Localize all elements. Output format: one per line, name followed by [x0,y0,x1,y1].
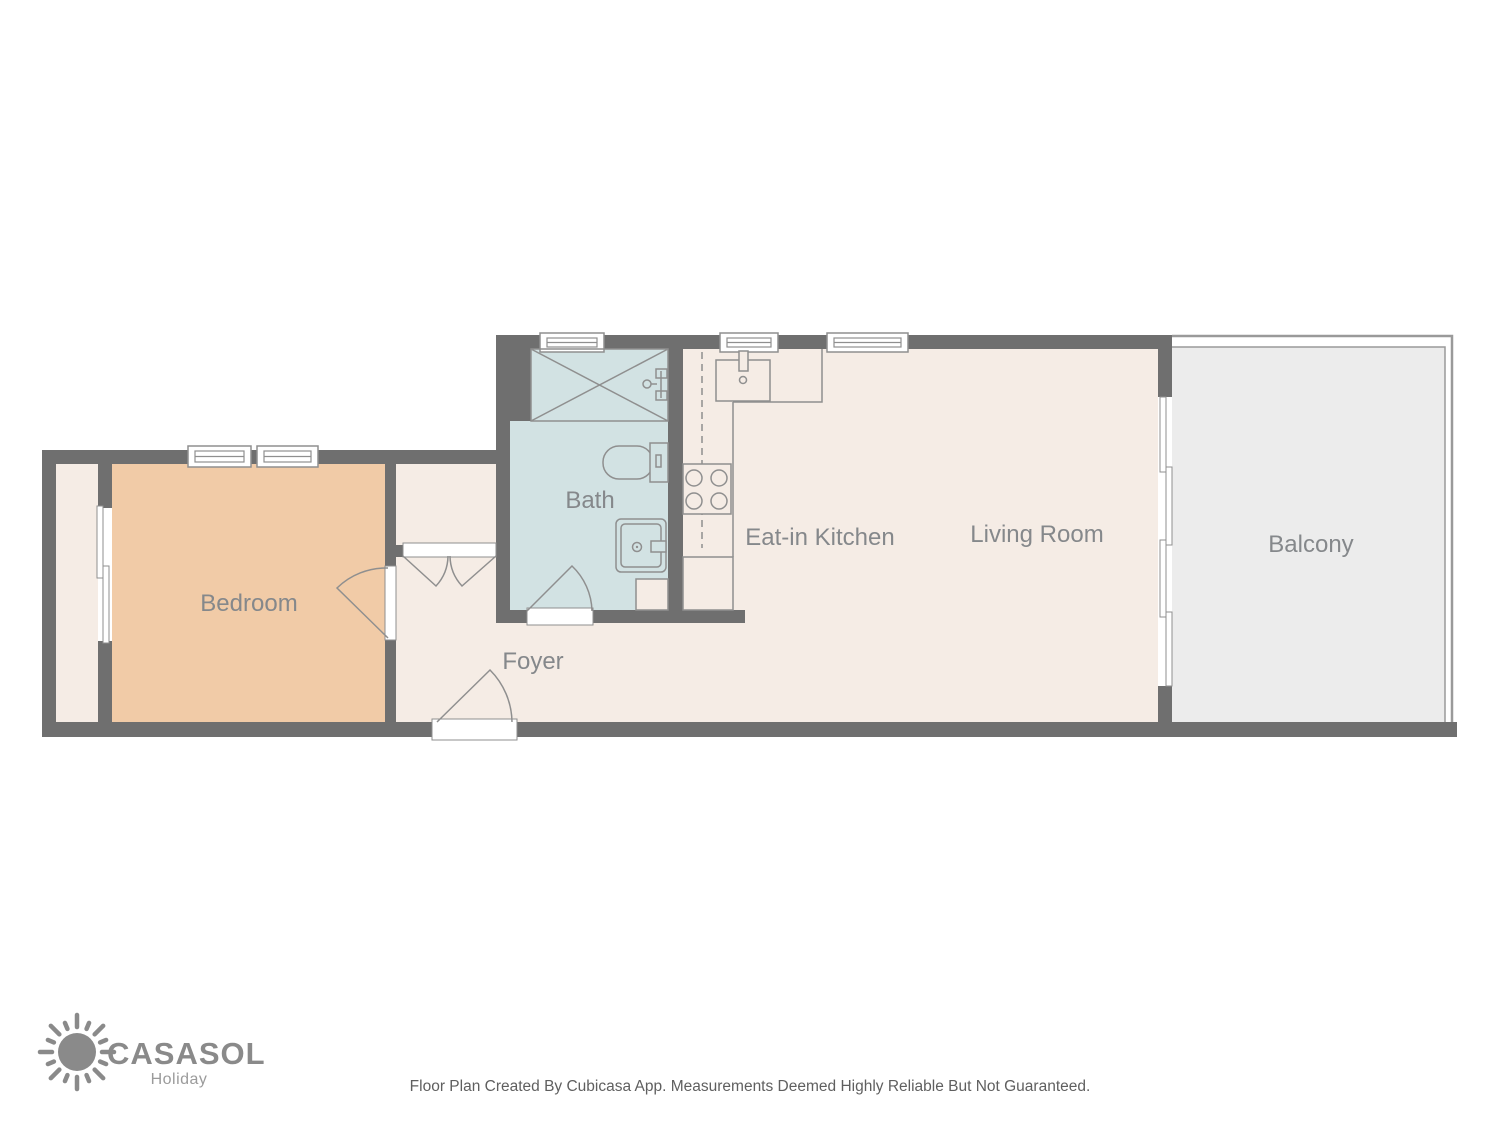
wall-bottom-outer [42,722,1457,737]
balcony-slider-panel-3 [1160,540,1166,617]
footer-disclaimer: Floor Plan Created By Cubicasa App. Meas… [410,1078,1091,1095]
closet-door-header [403,543,496,557]
refrigerator [683,557,733,610]
bathroom-sink [616,519,666,572]
bedroom-strip-slider-panel-2 [103,566,109,643]
room-label-balcony: Balcony [1268,531,1353,558]
room-label-kitchen: Eat-in Kitchen [745,524,894,551]
room-label-bath: Bath [565,487,614,514]
entry-door-threshold [432,719,517,740]
wall-balcony-bottom-stub [1158,686,1172,723]
balcony-slider-panel-1 [1160,397,1166,472]
wall-bath-left-thick [496,335,531,421]
wall-left-outer [42,450,56,737]
logo-tagline-text: Holiday [151,1071,208,1088]
wall-balcony-top-stub [1158,335,1172,397]
logo: CASASOL Holiday [40,1015,266,1089]
wall-bath-right [668,335,683,623]
soap-dish-icon [651,541,666,552]
floor-plan-page: Bedroom Bath Foyer Eat-in Kitchen Living… [0,0,1500,1125]
stove [683,464,731,514]
balcony-slider-panel-4 [1166,612,1172,686]
bedroom-door-leaf [385,566,396,640]
bath-cabinet [636,579,668,610]
bath-door-threshold [527,608,593,625]
room-label-living: Living Room [970,521,1103,548]
bedroom-window-1 [188,446,251,467]
floor-plan-drawing: Bedroom Bath Foyer Eat-in Kitchen Living… [0,0,1500,1125]
kitchen-faucet-icon [739,351,748,371]
logo-brand-text: CASASOL [107,1036,266,1071]
room-side-balcony-strip [56,464,98,722]
room-label-bedroom: Bedroom [200,590,297,617]
bedroom-window-2 [257,446,318,467]
sun-icon [40,1015,114,1089]
kitchen-window [720,333,778,352]
wall-strip-divider-upper [98,464,112,508]
bedroom-strip-slider-panel-1 [97,506,103,578]
living-room-window [827,333,908,352]
room-label-foyer: Foyer [502,648,563,675]
shower-head-icon [643,380,651,388]
wall-closet-stub [396,545,403,557]
wall-strip-divider-lower [98,641,112,722]
toilet [603,443,668,482]
balcony-slider-panel-2 [1166,467,1172,545]
